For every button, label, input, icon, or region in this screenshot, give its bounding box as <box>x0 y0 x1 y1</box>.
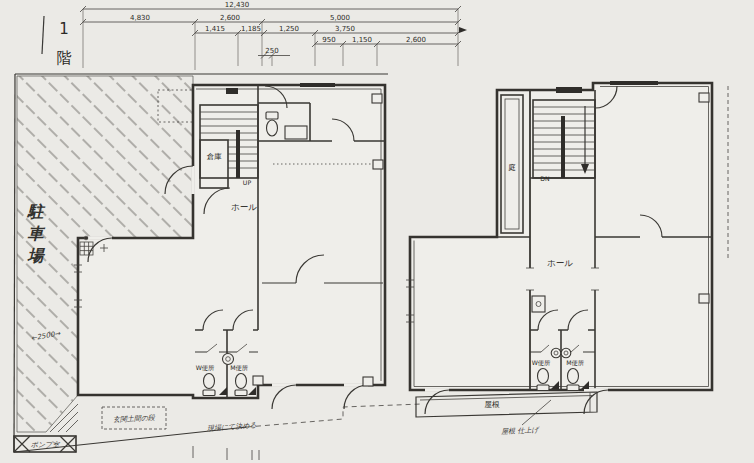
plan-1f: UP 倉庫 ホール <box>14 74 422 460</box>
porch-ticks <box>193 446 259 460</box>
floorplan-drawing: 12,430 4,830 2,600 5,000 1,415 1,185 1,2… <box>0 0 754 463</box>
parking-label: 駐車場 <box>26 190 46 264</box>
stair-up-label: UP <box>243 179 252 186</box>
note-roof-leader <box>522 400 551 425</box>
floor-label-stroke <box>42 16 44 54</box>
pump-room-label: ポンプ室 <box>31 441 60 449</box>
section-arrow <box>459 27 467 33</box>
stair-dn-label: DN <box>540 175 550 182</box>
note-site: 現場にて決める <box>207 421 257 432</box>
pump-room: ポンプ室 <box>14 436 76 452</box>
dim-1150: 1,150 <box>352 36 372 44</box>
dim-1250: 1,250 <box>279 25 299 33</box>
dim-950: 950 <box>322 36 335 44</box>
dim-5000: 5,000 <box>330 14 350 22</box>
dim-2600a: 2,600 <box>220 14 240 22</box>
roof-label: 屋根 <box>485 400 501 409</box>
dim-250: 250 <box>265 47 278 55</box>
dim-3750: 3,750 <box>335 25 355 33</box>
note-entry: 玄関土間の段 <box>113 414 157 424</box>
dim-total: 12,430 <box>225 1 250 9</box>
note-roof: 屋根 仕上げ <box>501 426 541 436</box>
dim-1415: 1,415 <box>205 25 225 33</box>
wc-w-label-1f: W便所 <box>196 364 215 372</box>
hall-label-1f: ホール <box>231 202 257 212</box>
sink-2f <box>532 296 545 312</box>
court-label: 庭 <box>508 163 516 172</box>
wc-w-label-2f: W便所 <box>532 359 551 367</box>
wc-m-label-1f: M便所 <box>230 364 249 372</box>
dimension-chain: 12,430 4,830 2,600 5,000 1,415 1,185 1,2… <box>80 1 467 70</box>
hall-label-2f: ホール <box>547 258 573 268</box>
dim-1185: 1,185 <box>241 25 261 33</box>
wc-m-label-2f: M便所 <box>566 359 585 367</box>
floorplan-scan: 12,430 4,830 2,600 5,000 1,415 1,185 1,2… <box>0 0 754 463</box>
dim-4830: 4,830 <box>130 14 150 22</box>
floor-label-1f: 1階 <box>55 20 73 66</box>
dim-2600b: 2,600 <box>406 36 426 44</box>
roof-strip: 屋根 <box>416 392 597 417</box>
plan-2f: 庭 <box>406 83 728 436</box>
storage-label: 倉庫 <box>207 152 223 161</box>
